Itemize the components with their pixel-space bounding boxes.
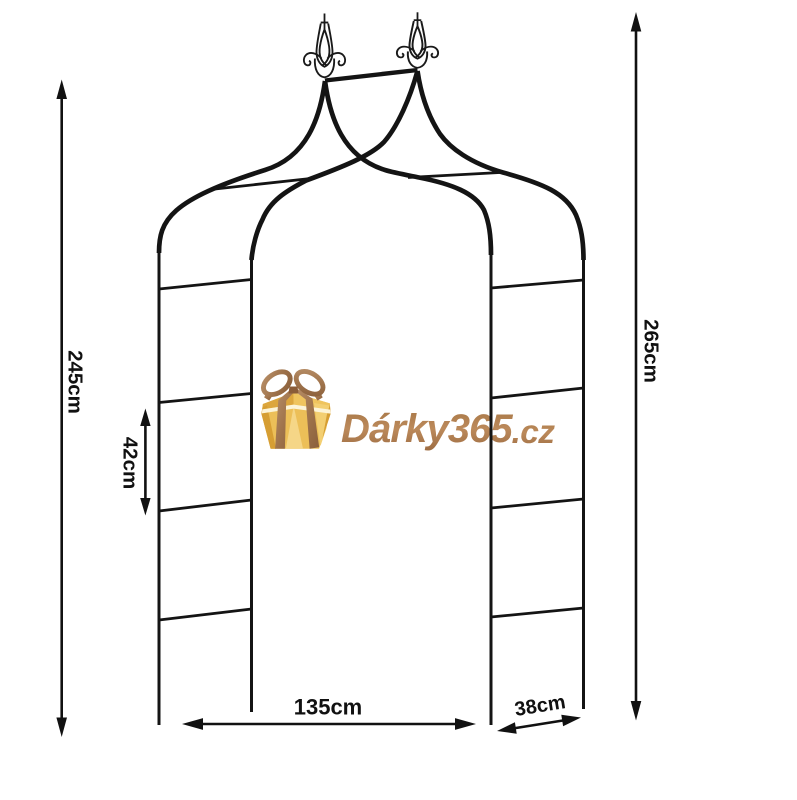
svg-text:.cz: .cz xyxy=(512,414,556,451)
svg-text:Dárky365: Dárky365 xyxy=(341,407,513,451)
svg-text:135cm: 135cm xyxy=(294,695,363,720)
svg-text:265cm: 265cm xyxy=(640,319,663,383)
svg-text:245cm: 245cm xyxy=(64,350,87,414)
svg-text:42cm: 42cm xyxy=(119,437,142,489)
